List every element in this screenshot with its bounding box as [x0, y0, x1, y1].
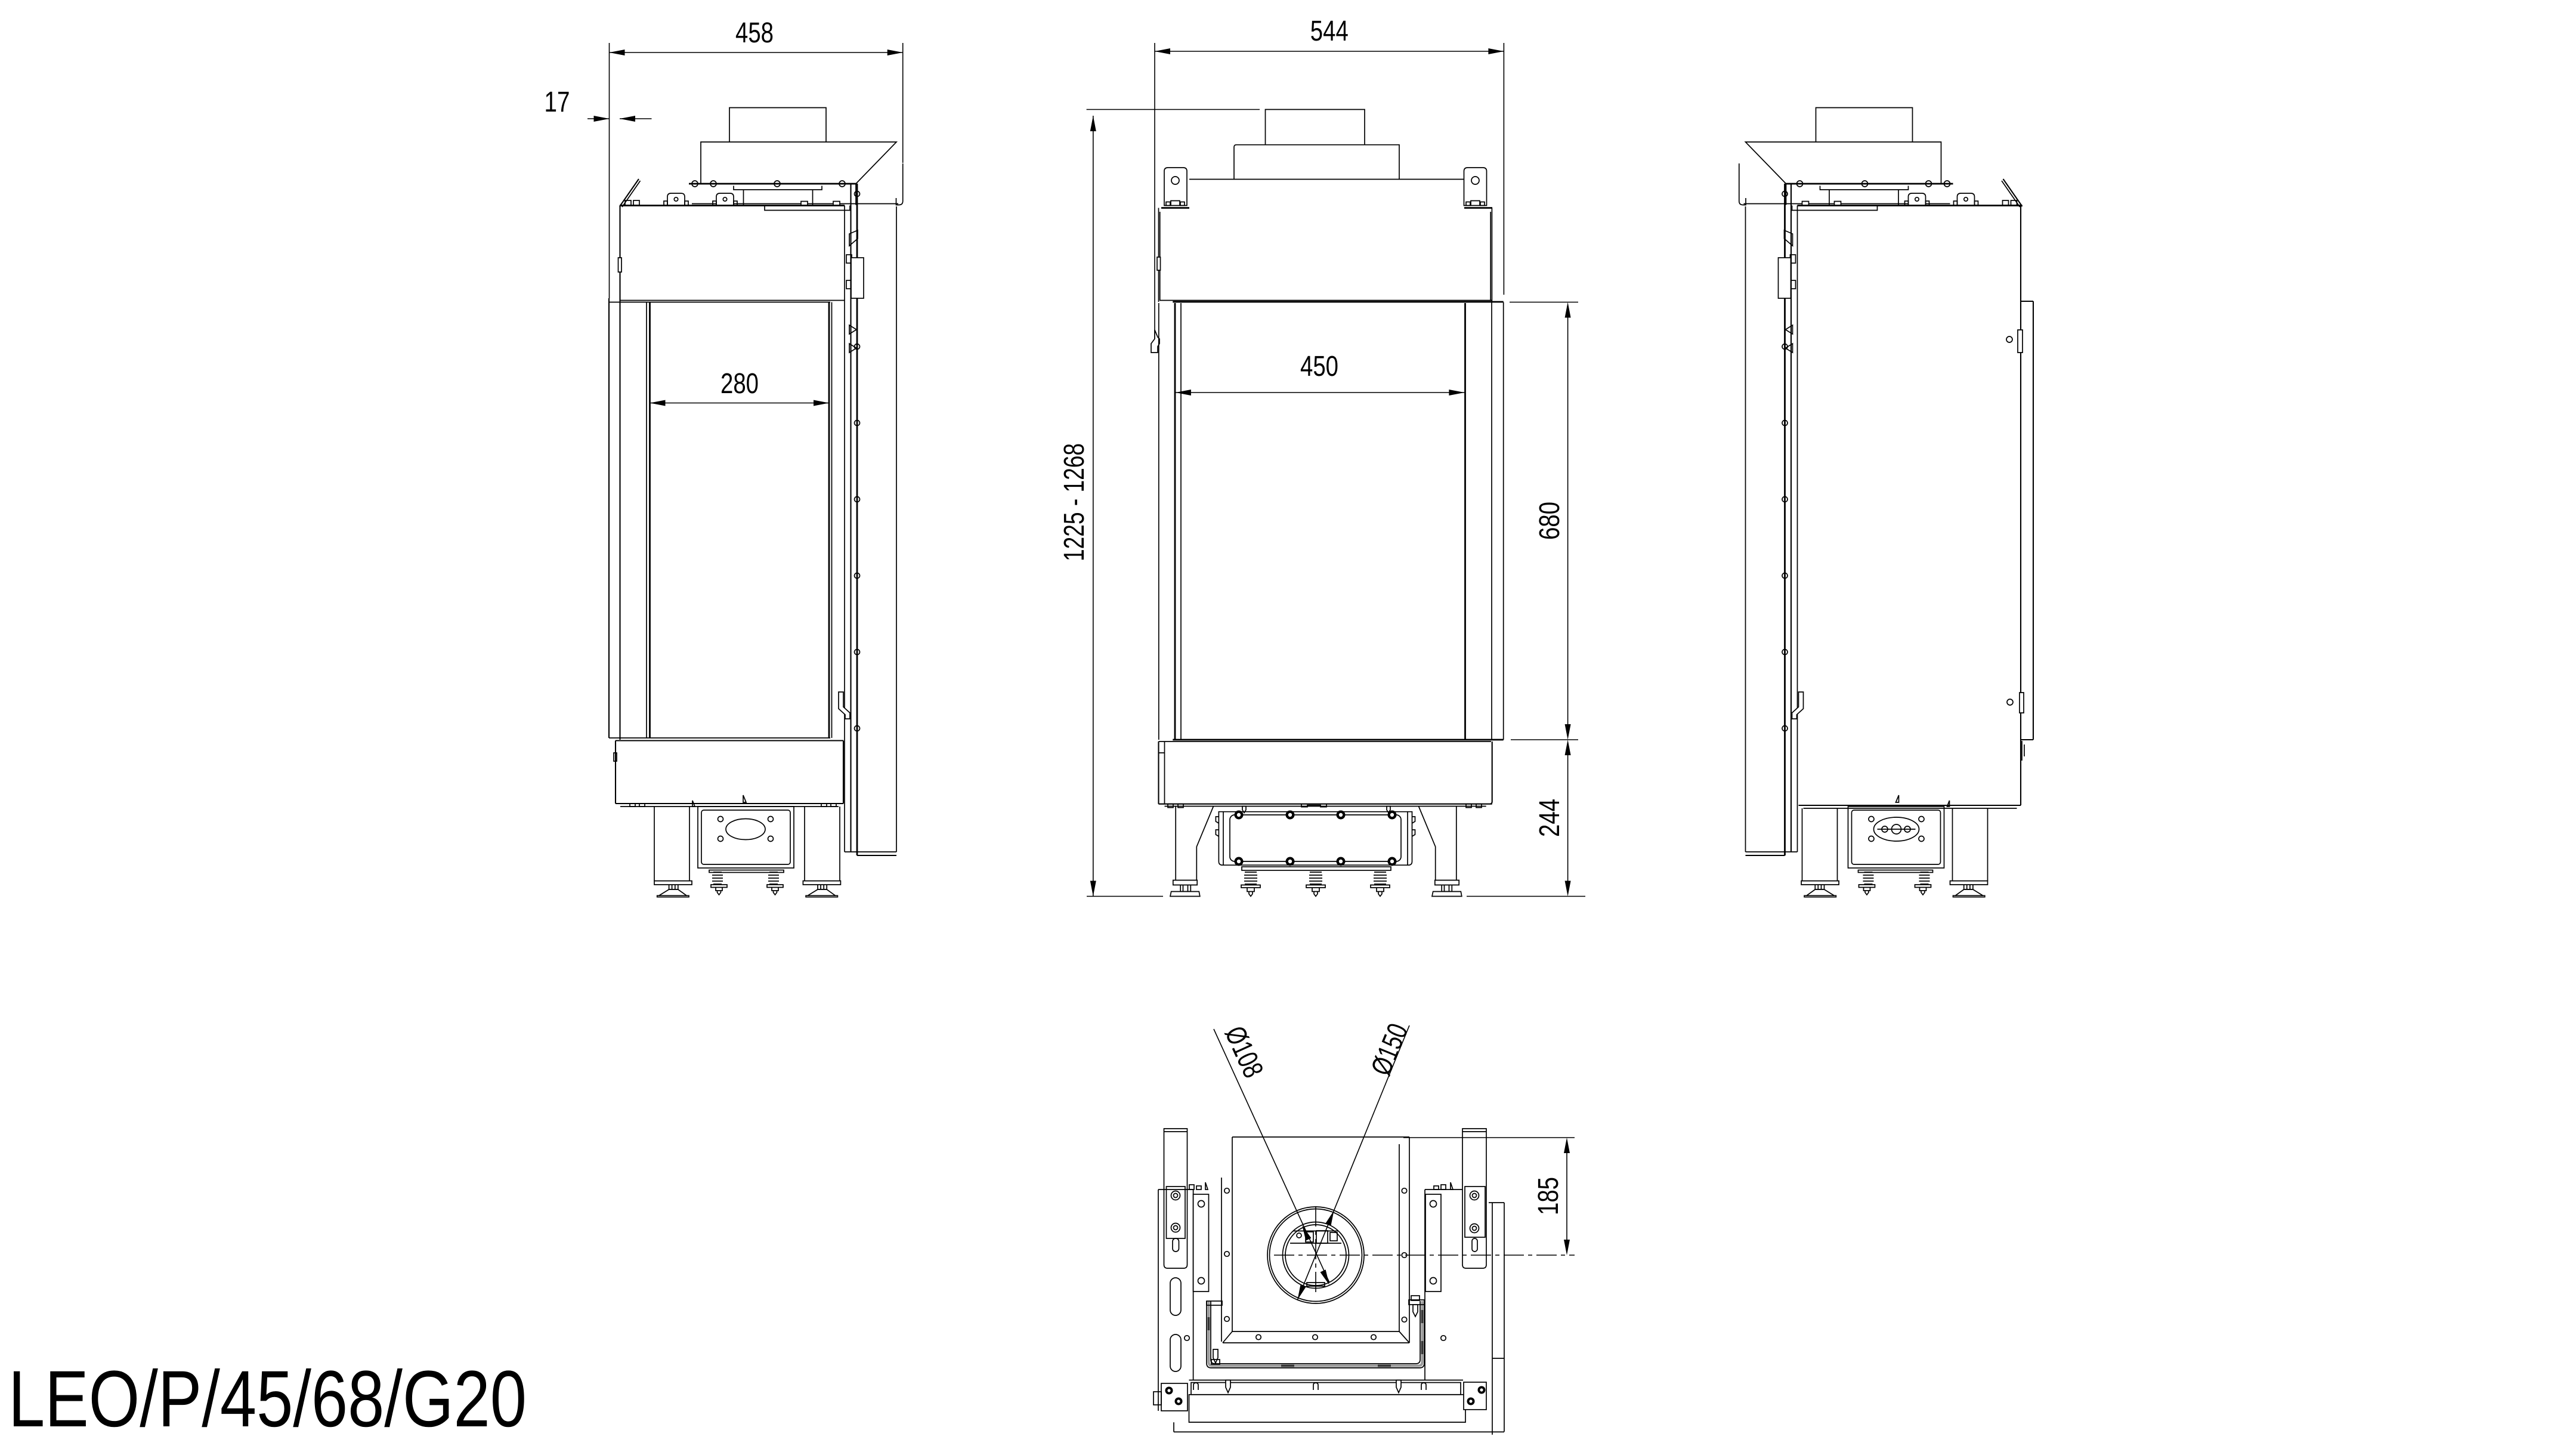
svg-text:680: 680: [1534, 502, 1566, 540]
svg-text:185: 185: [1533, 1177, 1564, 1215]
svg-text:17: 17: [545, 86, 570, 118]
svg-text:450: 450: [1300, 351, 1338, 382]
svg-text:LEO/P/45/68/G20: LEO/P/45/68/G20: [8, 1355, 527, 1444]
svg-text:544: 544: [1310, 16, 1349, 47]
svg-text:280: 280: [720, 368, 759, 400]
svg-text:244: 244: [1534, 799, 1566, 837]
svg-text:1225 - 1268: 1225 - 1268: [1059, 443, 1090, 561]
svg-text:458: 458: [735, 17, 774, 49]
